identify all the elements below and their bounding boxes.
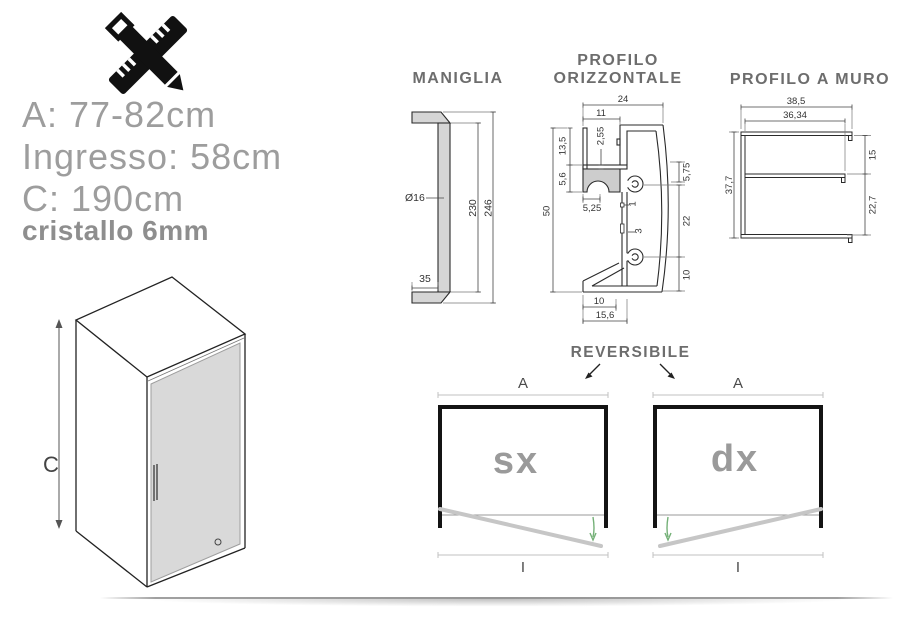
dim-label: 38,5: [787, 96, 806, 107]
spec-width: A: 77-82cm: [22, 97, 216, 133]
dim-label: A: [518, 375, 528, 392]
dim-label: 22,7: [868, 196, 879, 215]
spec-sheet: A: 77-82cm Ingresso: 58cm C: 190cm crist…: [0, 0, 900, 632]
dim-label: 24: [618, 94, 629, 105]
dim-label: 13,5: [558, 137, 569, 156]
dim-label: 5,75: [682, 163, 693, 182]
handle-shape: [412, 112, 450, 303]
dim-label: I: [736, 559, 740, 576]
glass-panel: [151, 343, 240, 582]
design-tools-icon: [95, 8, 200, 103]
dim-label: 230: [467, 199, 479, 217]
spec-height: C: 190cm: [22, 181, 184, 217]
profile-shape: [741, 132, 852, 243]
dim-label: 37,7: [725, 176, 735, 195]
dim-label: 1: [628, 201, 639, 206]
dim-label: 36,34: [783, 110, 807, 121]
door-side-label: dx: [711, 438, 759, 480]
swing-arrow: [590, 517, 596, 540]
dim-label: 5,6: [558, 172, 569, 185]
height-dimension: C: [43, 319, 63, 529]
dim-label: 15,6: [596, 310, 615, 321]
dim-label: 35: [419, 273, 431, 285]
profilo-orizzontale-title: PROFILO ORIZZONTALE: [538, 52, 698, 88]
swing-arrow: [665, 517, 671, 540]
dimension-lines: [732, 105, 868, 239]
door-dx-diagram: A I dx: [645, 372, 835, 577]
dim-label: 2,55: [596, 127, 607, 146]
profilo-orizzontale-drawing: 24 11 13,5 5,6 50 2,55 5,25 1 3 5,75 22 …: [540, 93, 715, 338]
title-line-2: ORIZZONTALE: [538, 70, 698, 88]
dim-label: 50: [542, 206, 553, 217]
dim-label: 5,25: [583, 203, 602, 214]
dim-label: 15: [868, 150, 879, 161]
door-sx-diagram: A I sx: [428, 372, 618, 577]
spec-entry: Ingresso: 58cm: [22, 139, 282, 175]
profilo-muro-drawing: 38,5 36,34 37,7 15 22,7: [725, 95, 885, 250]
dim-label: A: [733, 375, 743, 392]
entry-dimension: [653, 552, 823, 558]
entry-dimension: [438, 552, 608, 558]
page-divider-shadow: [95, 599, 900, 609]
dim-label: 10: [682, 270, 693, 281]
maniglia-title: MANIGLIA: [398, 70, 518, 88]
maniglia-drawing: Ø16 230 246 35: [405, 100, 520, 325]
spec-glass-thickness: cristallo 6mm: [22, 217, 209, 245]
dim-label: Ø16: [405, 192, 425, 204]
door-side-label: sx: [493, 440, 539, 482]
dim-label: 246: [483, 199, 495, 217]
dim-label: 11: [596, 108, 606, 119]
dim-label: 22: [682, 216, 693, 227]
dim-label: 3: [634, 228, 645, 233]
dim-label: C: [43, 452, 59, 477]
dim-label: 10: [594, 296, 605, 307]
profilo-muro-title: PROFILO A MURO: [725, 71, 895, 89]
width-dimension: [653, 392, 823, 398]
dim-label: I: [521, 559, 525, 576]
title-line-1: PROFILO: [538, 52, 698, 70]
shower-box-3d-drawing: C: [40, 265, 270, 610]
width-dimension: [438, 392, 608, 398]
